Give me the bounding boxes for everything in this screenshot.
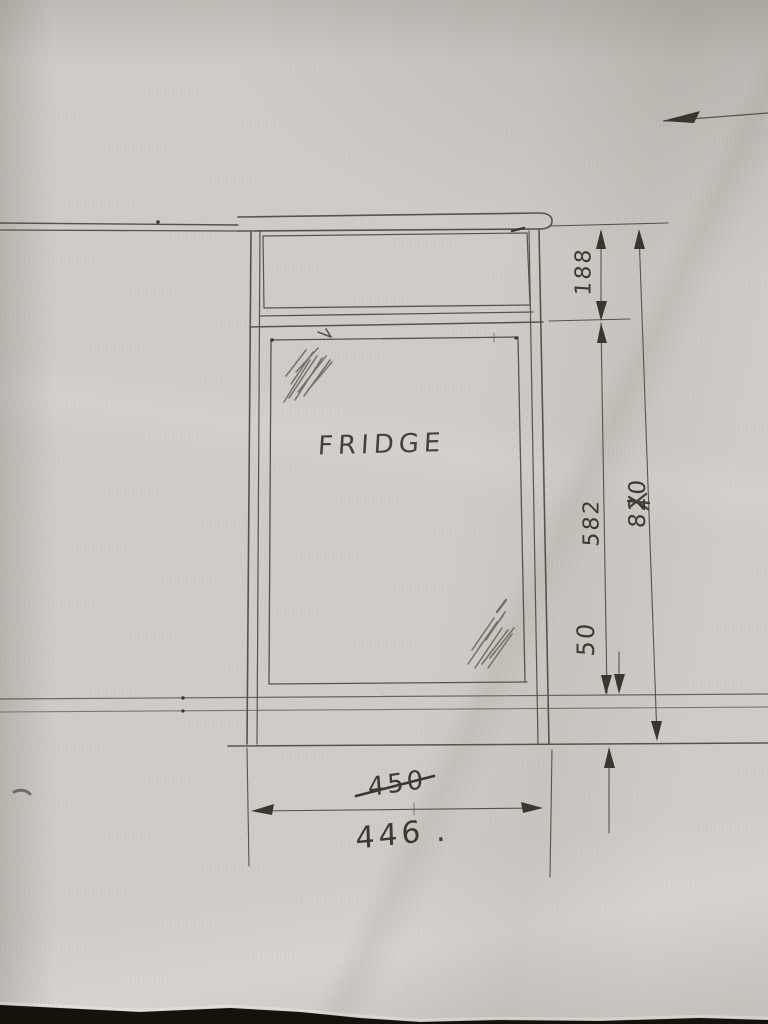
- pencil-smudge-left: [14, 790, 30, 794]
- dim-label-plinth-50: 50: [572, 620, 600, 658]
- fridge-opening: [269, 329, 527, 684]
- hatching-top-left: [284, 348, 332, 402]
- dim-label-overall-820: 820: [625, 476, 651, 530]
- hatching-bottom-right: [468, 600, 514, 668]
- dim-label-top-section-188: 188: [572, 245, 597, 299]
- dim-label-opening-582: 582: [580, 496, 605, 550]
- width-dimension-lines: [247, 748, 552, 877]
- fridge-label: FRIDGE: [317, 429, 429, 462]
- photo-of-pencil-sketch: FRIDGE 188 582 820 50 450 446 .: [0, 0, 768, 1024]
- corrections: [14, 494, 649, 796]
- pencil-linework: [0, 113, 768, 877]
- pencil-dots: [156, 220, 517, 712]
- countertop-slab: [238, 213, 552, 231]
- drawer-box: [260, 228, 533, 316]
- plinth-lines: [0, 694, 768, 746]
- cabinet-sketch-drawing: [0, 0, 768, 1024]
- countertop-lines: [0, 223, 238, 231]
- shelf-line: [250, 322, 543, 327]
- photo-bottom-edge: [0, 1003, 768, 1024]
